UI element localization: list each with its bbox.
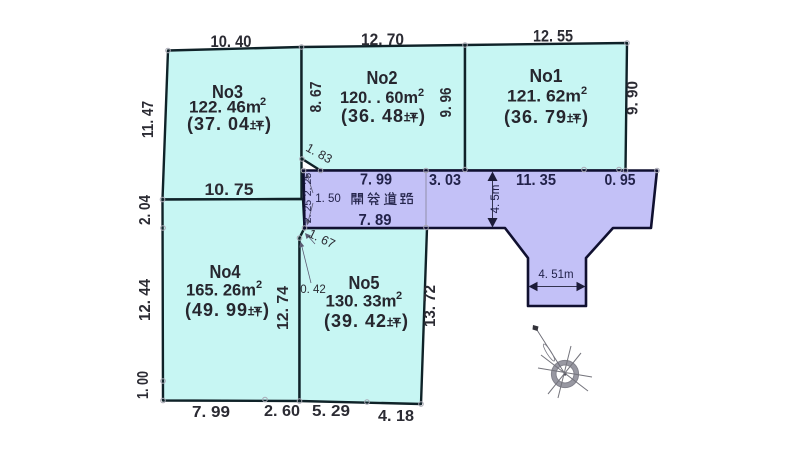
svg-text:1. 00: 1. 00 <box>135 371 152 399</box>
svg-text:(49. 99: (49. 99 <box>185 300 248 320</box>
svg-text:): ) <box>582 107 588 127</box>
svg-text:(37. 04: (37. 04 <box>187 114 250 134</box>
svg-text:1. 50: 1. 50 <box>315 193 341 205</box>
svg-text:13. 72: 13. 72 <box>422 285 439 327</box>
svg-text:12. 55: 12. 55 <box>533 27 573 46</box>
svg-text:No2: No2 <box>367 68 398 88</box>
svg-text:165. 26m: 165. 26m <box>186 281 256 300</box>
svg-text:): ) <box>265 114 271 134</box>
svg-text:(39. 42: (39. 42 <box>324 311 387 331</box>
svg-text:2. 25: 2. 25 <box>302 173 314 197</box>
svg-text:): ) <box>263 300 269 320</box>
svg-text:8. 67: 8. 67 <box>308 82 325 113</box>
svg-text:7. 89: 7. 89 <box>359 212 392 229</box>
svg-text:7. 99: 7. 99 <box>192 404 230 421</box>
svg-text:121. 62m: 121. 62m <box>507 87 581 106</box>
svg-text:2. 60: 2. 60 <box>264 403 300 420</box>
svg-text:10. 40: 10. 40 <box>211 32 252 51</box>
svg-text:0. 95: 0. 95 <box>605 172 636 189</box>
svg-text:12. 44: 12. 44 <box>137 279 154 321</box>
svg-text:5. 29: 5. 29 <box>312 403 350 420</box>
svg-text:130. 33m: 130. 33m <box>326 292 397 311</box>
svg-text:): ) <box>419 106 425 126</box>
svg-text:(36. 48: (36. 48 <box>341 106 404 126</box>
svg-text:9. 96: 9. 96 <box>438 87 455 117</box>
svg-text:120. . 60m: 120. . 60m <box>340 88 418 107</box>
svg-text:No1: No1 <box>530 66 563 86</box>
svg-text:0. 42: 0. 42 <box>300 284 326 296</box>
svg-text:4. 18: 4. 18 <box>378 408 414 425</box>
svg-text:2. 04: 2. 04 <box>137 195 154 225</box>
svg-text:11. 35: 11. 35 <box>516 172 556 189</box>
svg-text:2: 2 <box>396 290 402 302</box>
svg-text:2: 2 <box>418 87 424 99</box>
svg-text:2: 2 <box>581 85 587 97</box>
svg-text:12. 74: 12. 74 <box>275 286 292 330</box>
svg-text:4. 51m: 4. 51m <box>538 269 573 281</box>
svg-text:10. 75: 10. 75 <box>205 180 254 199</box>
svg-text:7. 99: 7. 99 <box>360 172 392 189</box>
svg-text:): ) <box>402 311 408 331</box>
svg-text:3. 03: 3. 03 <box>429 172 461 189</box>
svg-text:2. 25: 2. 25 <box>302 200 314 224</box>
svg-text:(36. 79: (36. 79 <box>504 107 567 127</box>
svg-text:No5: No5 <box>349 273 380 293</box>
svg-text:2: 2 <box>260 96 266 108</box>
svg-text:12. 70: 12. 70 <box>361 30 404 49</box>
svg-text:No4: No4 <box>210 262 241 282</box>
svg-text:11. 47: 11. 47 <box>140 101 157 138</box>
svg-text:2: 2 <box>256 279 262 291</box>
svg-text:4. 5m: 4. 5m <box>490 185 502 214</box>
svg-text:9. 90: 9. 90 <box>625 81 642 115</box>
